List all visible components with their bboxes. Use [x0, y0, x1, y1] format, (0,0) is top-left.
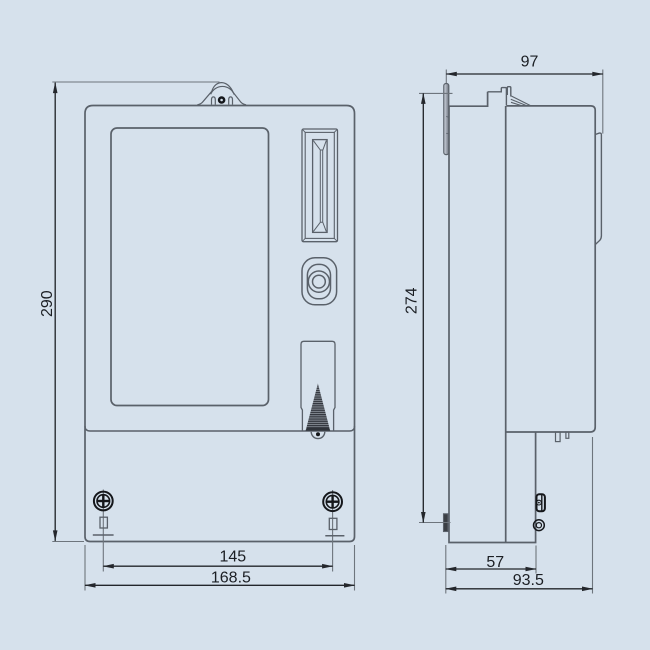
svg-text:57: 57 — [486, 554, 504, 571]
svg-text:97: 97 — [521, 53, 539, 70]
svg-text:290: 290 — [39, 290, 56, 317]
svg-text:274: 274 — [404, 287, 421, 314]
svg-text:168.5: 168.5 — [211, 569, 251, 586]
svg-text:145: 145 — [219, 548, 246, 565]
svg-text:93.5: 93.5 — [513, 572, 544, 589]
